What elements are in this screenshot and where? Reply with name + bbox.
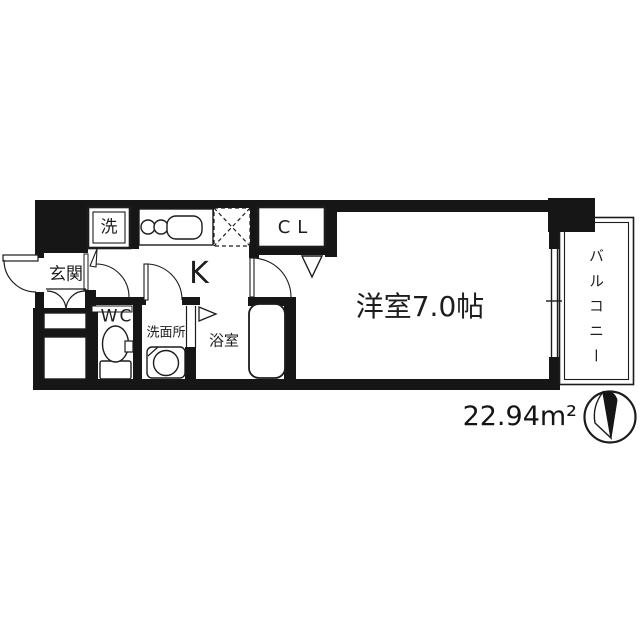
entrance-step-partition (84, 254, 88, 290)
wall-bath-divider (185, 347, 196, 382)
floorplan-drawing (0, 0, 640, 640)
label-entrance: 玄関 (49, 267, 83, 284)
toilet-flush-handle (125, 341, 133, 352)
storage-box-lower (44, 337, 86, 379)
wall-left-upper (35, 200, 44, 258)
shoe-cabinet-door-arc-right (66, 291, 85, 310)
hall-door-leaf (90, 249, 97, 267)
washroom-door-leaf (144, 264, 148, 300)
front-door-swing-arc (4, 260, 36, 292)
front-door-leaf (3, 255, 38, 261)
room-door-swing-arc (252, 258, 291, 297)
label-balcony: バルコニー (588, 248, 603, 373)
label-closet: CL (278, 219, 315, 237)
label-washroom: 洗面所 (146, 327, 185, 340)
shoe-cabinet-door-arc-left (47, 291, 66, 310)
toilet-tank (100, 361, 131, 379)
wall-bottom (35, 379, 560, 390)
closet-folding-door-triangle (302, 256, 322, 277)
label-wc: WC (101, 309, 134, 326)
wall-washroom-top (182, 297, 200, 305)
label-main-room: 洋室7.0帖 (356, 293, 485, 321)
label-kitchen: K (189, 259, 209, 289)
compass (585, 392, 636, 443)
label-washer: 洗 (101, 220, 118, 237)
room-door-leaf (250, 258, 254, 297)
storage-box-upper (44, 313, 86, 329)
wall-wc-right (133, 300, 142, 382)
bath-door-flag (199, 307, 216, 321)
hall-door-swing-arc (96, 264, 129, 297)
floorplan-canvas: 玄関 洗 K CL WC 洗面所 浴室 洋室7.0帖 バルコニー 22.94m² (0, 0, 640, 640)
bathtub (249, 304, 285, 378)
label-bathroom: 浴室 (209, 334, 239, 349)
label-floor-area: 22.94m² (431, 403, 577, 430)
fridge-space (214, 208, 250, 246)
stove-burner-left (141, 220, 155, 234)
wall-window-bottom (549, 357, 560, 385)
washroom-area (147, 347, 185, 378)
wall-topright-block-overlay (548, 198, 595, 232)
washroom-door-swing-arc (146, 264, 182, 300)
vanity-sink-basin (154, 351, 179, 376)
kitchen-sink (167, 216, 202, 239)
stove-burner-right (154, 220, 168, 234)
